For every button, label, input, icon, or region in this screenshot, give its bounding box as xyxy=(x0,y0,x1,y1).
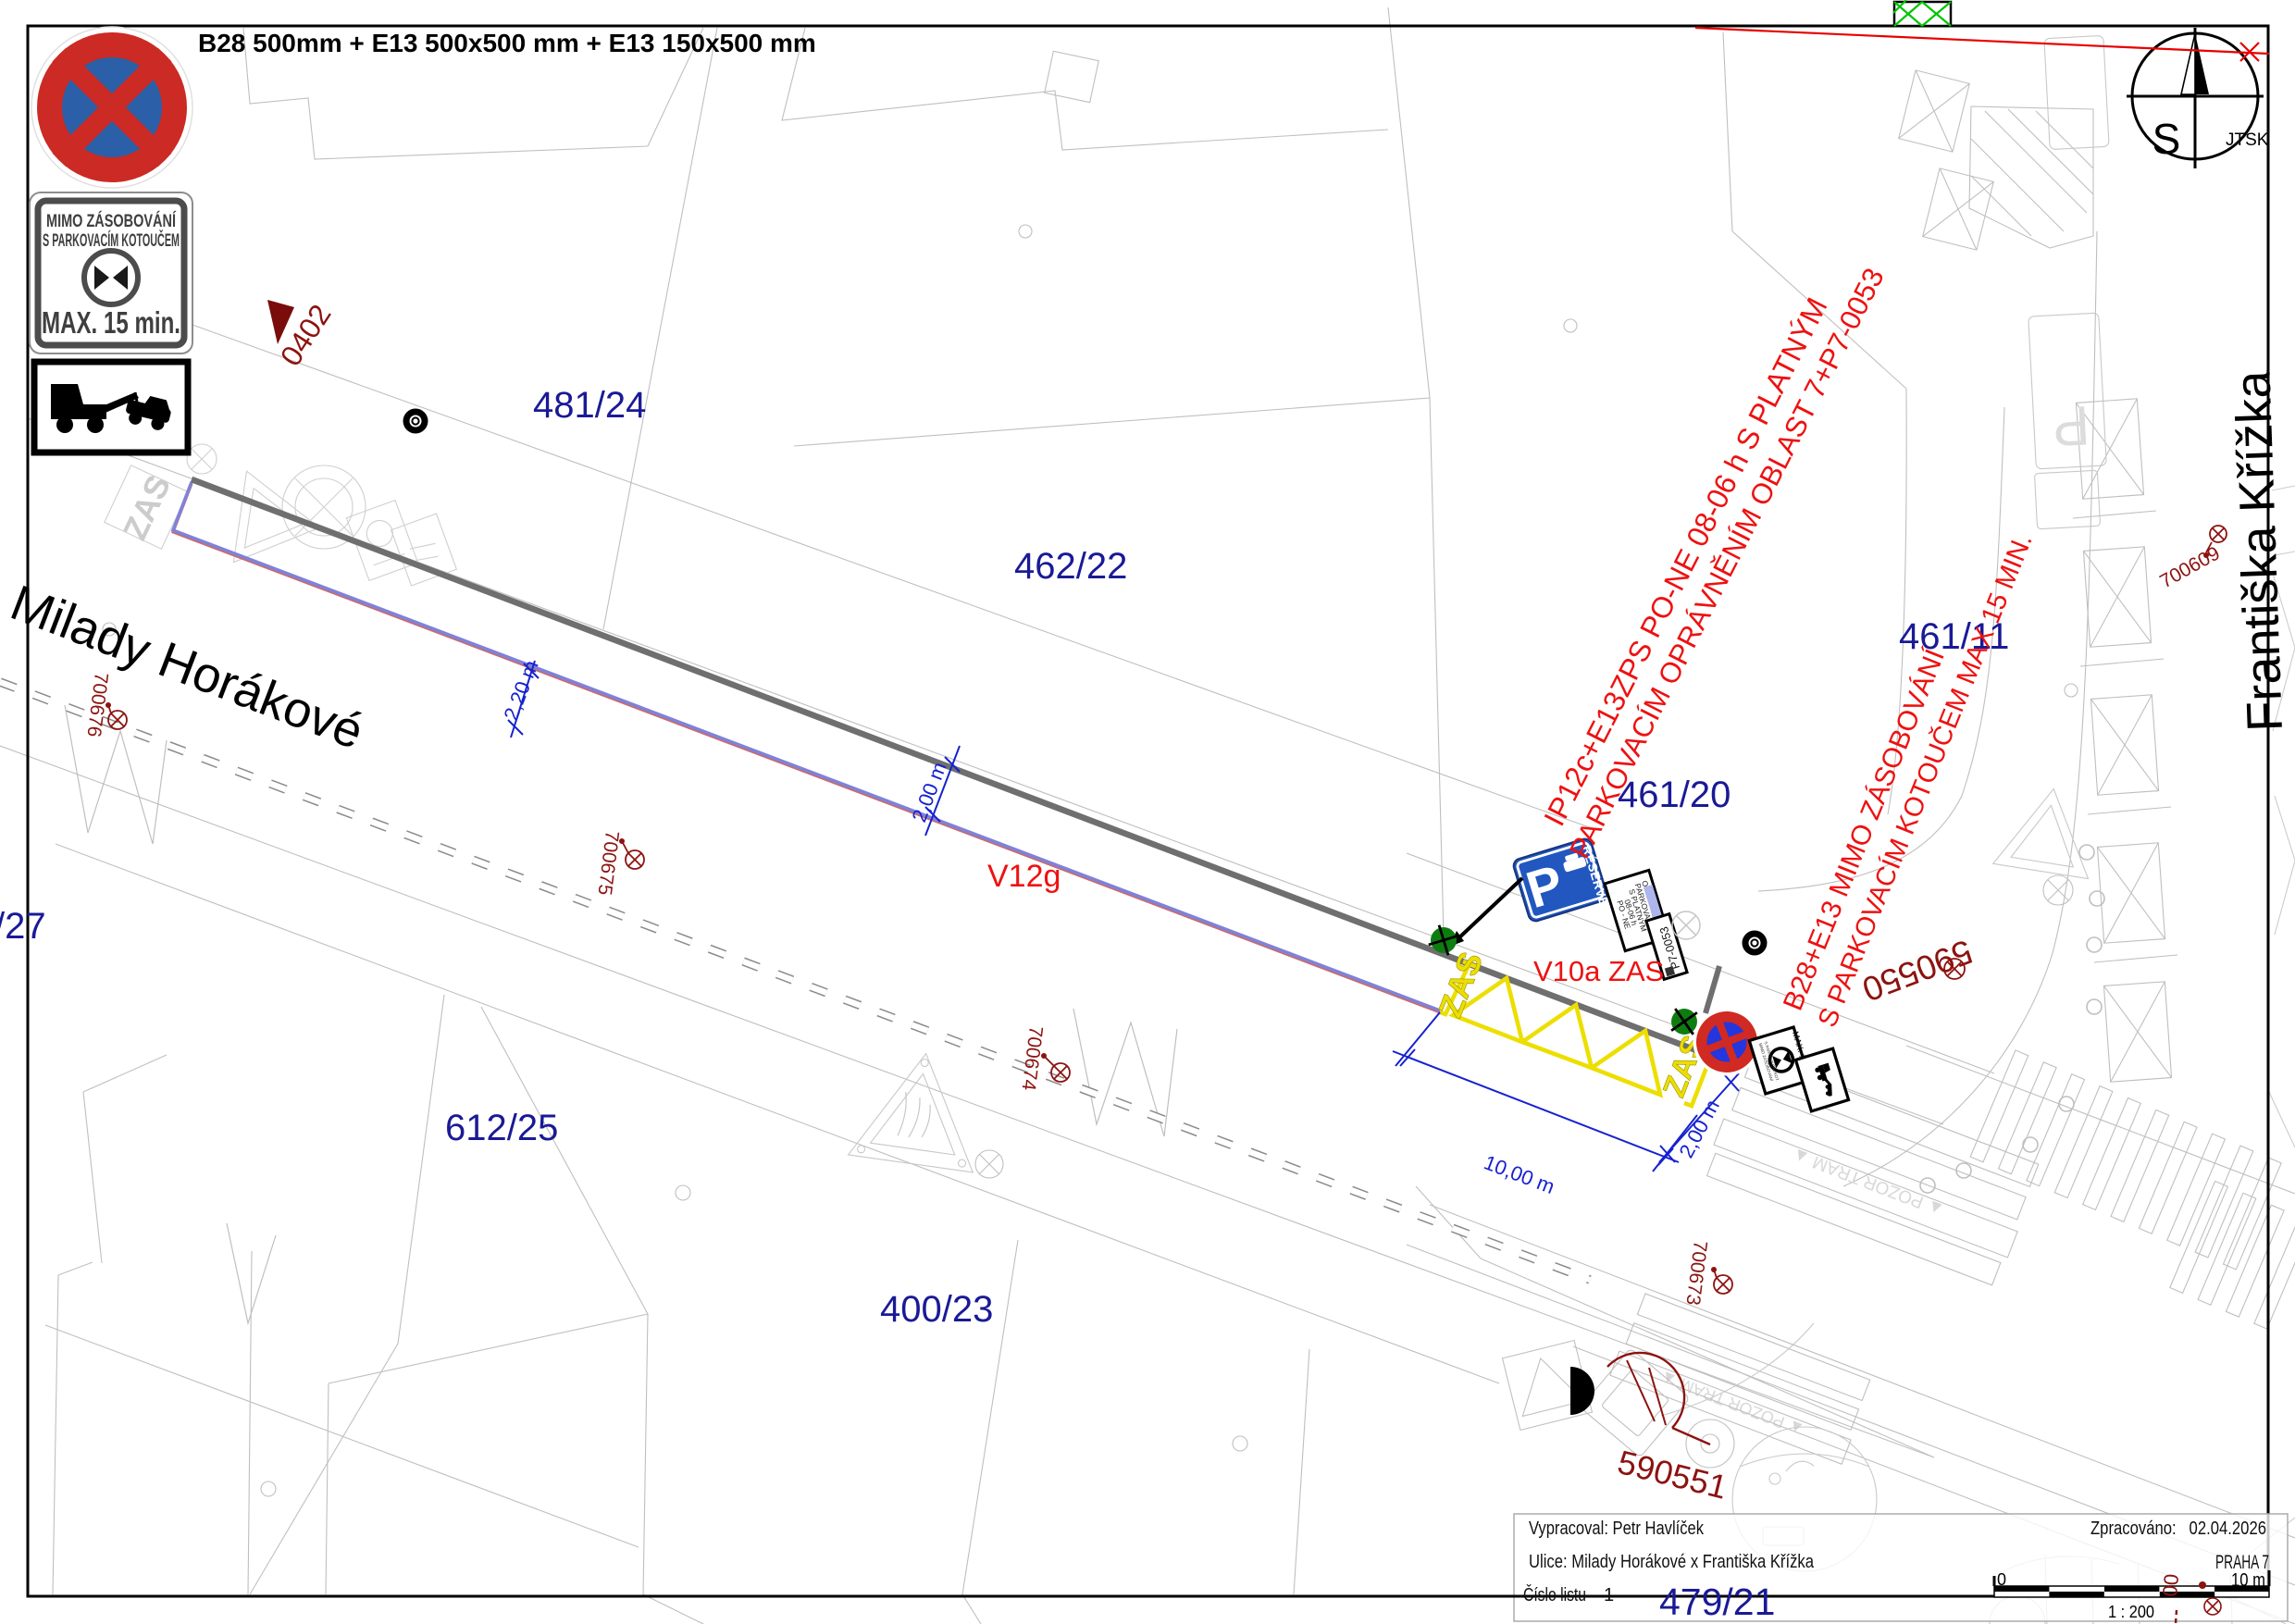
svg-text:1: 1 xyxy=(1604,1585,1614,1605)
svg-text:Milady Horákové: Milady Horákové xyxy=(4,575,371,760)
svg-text:Františka Křížka: Františka Křížka xyxy=(2225,369,2293,733)
svg-text:Číslo listu: Číslo listu xyxy=(1523,1584,1586,1605)
svg-text:700674: 700674 xyxy=(1017,1024,1046,1092)
svg-text:2,00 m: 2,00 m xyxy=(907,759,950,825)
svg-text:700675: 700675 xyxy=(593,829,622,896)
svg-text:▲ POZOR TRAM ▲: ▲ POZOR TRAM ▲ xyxy=(1790,1144,1947,1220)
svg-text:0: 0 xyxy=(1997,1570,2006,1589)
svg-text:400/23: 400/23 xyxy=(880,1289,993,1330)
svg-text:Ulice: Milady Horákové x Frant: Ulice: Milady Horákové x Františka Křížk… xyxy=(1529,1552,1815,1572)
svg-text:Vypracoval: Petr Havlíček: Vypracoval: Petr Havlíček xyxy=(1529,1519,1705,1539)
svg-text:481/24: 481/24 xyxy=(533,385,646,426)
svg-text:IP12c+E13ZPS PO-NE 08-06 h S P: IP12c+E13ZPS PO-NE 08-06 h S PLATNÝM xyxy=(1537,292,1833,831)
svg-text:MAX. 15 min.: MAX. 15 min. xyxy=(42,305,180,340)
svg-text:S PARKOVACÍM KOTOUČEM: S PARKOVACÍM KOTOUČEM xyxy=(43,230,180,251)
svg-text:V12g: V12g xyxy=(987,859,1061,894)
svg-text:10,00 m: 10,00 m xyxy=(1481,1150,1557,1198)
svg-text:700676: 700676 xyxy=(82,671,111,738)
svg-text:612/25: 612/25 xyxy=(445,1108,558,1148)
svg-text:461/20: 461/20 xyxy=(1618,775,1731,815)
svg-text:Zpracováno: 02.04.2026: Zpracováno: 02.04.2026 xyxy=(2090,1519,2266,1539)
svg-text:/27: /27 xyxy=(0,906,46,947)
svg-text:JTSK: JTSK xyxy=(2226,130,2269,150)
svg-text:1 : 200: 1 : 200 xyxy=(2108,1603,2154,1621)
svg-text:479/21: 479/21 xyxy=(1659,1581,1775,1623)
svg-text:462/22: 462/22 xyxy=(1014,546,1127,587)
svg-text:MIMO ZÁSOBOVÁNÍ: MIMO ZÁSOBOVÁNÍ xyxy=(46,211,177,231)
svg-text:PARKOVACÍM OPRÁVNĚNÍM OBLAST 7: PARKOVACÍM OPRÁVNĚNÍM OBLAST 7+P7-0053 xyxy=(1563,263,1891,863)
svg-text:V10a ZAS: V10a ZAS xyxy=(1533,955,1664,987)
svg-text:P: P xyxy=(2051,394,2090,458)
svg-text:S: S xyxy=(2152,115,2181,163)
svg-text:ZAS: ZAS xyxy=(1431,947,1490,1023)
svg-text:700673: 700673 xyxy=(1681,1239,1710,1306)
svg-text:10 m: 10 m xyxy=(2231,1570,2265,1591)
svg-text:2,00 m: 2,00 m xyxy=(1674,1096,1724,1161)
svg-text:B28 500mm + E13 500x500 mm + E: B28 500mm + E13 500x500 mm + E13 150x500… xyxy=(198,29,816,57)
svg-text:00: 00 xyxy=(2158,1573,2183,1598)
svg-text:700609: 700609 xyxy=(2156,542,2223,592)
svg-text:2,20 m: 2,20 m xyxy=(499,657,542,724)
